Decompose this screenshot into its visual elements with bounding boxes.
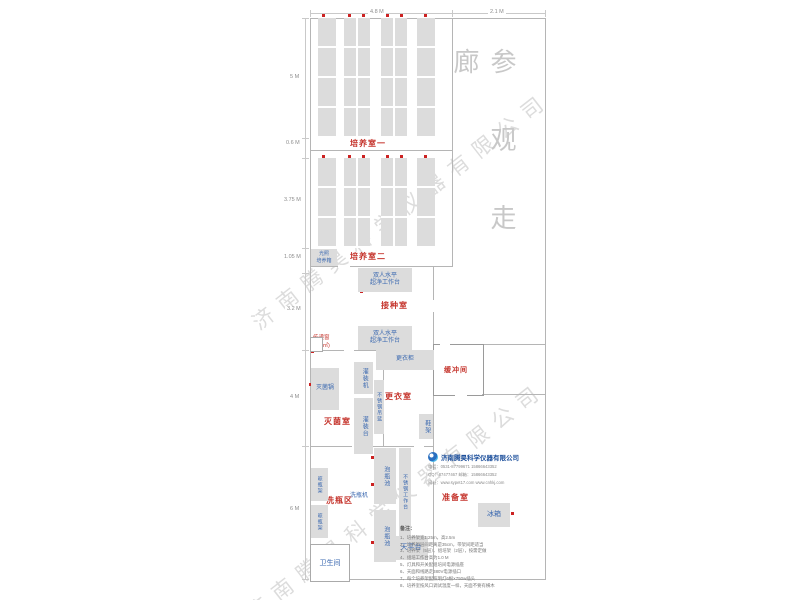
culture-rack [381, 18, 407, 138]
outlet-dot [400, 155, 403, 158]
room-label-buffer-room: 缓冲间 [444, 365, 468, 375]
outlet-dot [362, 14, 365, 17]
culture-rack [381, 158, 407, 248]
equipment-refrigerator: 冰箱 [478, 503, 510, 527]
outlet-dot [386, 14, 389, 17]
outlet-dot [322, 155, 325, 158]
dimension-label-left-1: 5 M [288, 74, 301, 80]
company-info-block: 济南腾昊科学仪器有限公司 电话：0531-87799671 1586664335… [428, 452, 523, 486]
note-item: 8、培养室按风口调试温度一样，天面不要有横木 [400, 583, 505, 590]
label-line: 超净工作台 [370, 280, 400, 286]
door-gap [338, 265, 350, 268]
company-qq: QQ：87477467 邮箱：15866643352 [428, 472, 523, 478]
equipment-stainless-worktable: 不锈钢工作台 [399, 448, 411, 536]
equipment-clean-bench-1: 双人水平 超净工作台 [358, 268, 412, 292]
outlet-dot [511, 512, 514, 515]
door-gap [455, 392, 467, 396]
dimension-label-left-3: 3.75 M [282, 197, 303, 203]
culture-rack [318, 158, 336, 248]
note-item: 7、每个培养架配照明灯6根×750w插头 [400, 576, 505, 583]
outlet-dot [362, 155, 365, 158]
label-line: 双人水平 [373, 273, 397, 279]
company-website: 网址：www.sypet17.com www.cnhkj.com [428, 480, 523, 486]
equipment-wardrobe: 更衣柜 [376, 350, 434, 370]
room-label-inoculation-room: 接种室 [381, 300, 408, 311]
dimension-tick [310, 10, 311, 17]
equipment-light-incubator: 光照 培养箱 [311, 249, 337, 266]
company-phone: 电话：0531-87799671 15866643352 [428, 464, 523, 470]
note-item: 1、培养架宽1.25m，高2.5m [400, 535, 505, 542]
culture-rack [417, 18, 435, 138]
dimension-tick [302, 248, 309, 249]
room-label-culture-room-2: 培养室二 [350, 251, 386, 262]
culture-rack [318, 18, 336, 138]
dimension-tick [545, 10, 546, 17]
wall [310, 266, 453, 267]
room-label-bottle-washing-area: 洗瓶区 [326, 495, 353, 506]
dimension-tick [302, 138, 309, 139]
dimension-tick [452, 10, 453, 17]
outlet-dot [424, 155, 427, 158]
visitor-corridor-label: 参观走廊 [446, 48, 520, 348]
notes-block: 备注： 1、培养架宽1.25m，高2.5m 2、培养架层间距离是35cm，带架间… [400, 526, 505, 589]
dimension-tick [302, 350, 309, 351]
dimension-tick [302, 579, 309, 580]
equipment-shoe-rack: 鞋架 [419, 414, 433, 439]
room-label-culture-room-1: 培养室一 [350, 138, 386, 149]
outlet-dot [348, 155, 351, 158]
dimension-label-left-4: 1.05 M [282, 254, 303, 260]
label-line: 超净工作台 [370, 338, 400, 344]
outlet-dot [424, 14, 427, 17]
notes-heading: 备注： [400, 526, 505, 534]
culture-rack [344, 158, 370, 248]
equipment-bottle-drying-rack: 晾瓶架 [311, 505, 328, 538]
equipment-bottle-washer-label: 洗瓶机 [350, 490, 368, 499]
floorplan-canvas: 济南腾昊科学仪器有限公司 济南腾昊科学仪器有限公司 [0, 0, 800, 600]
wall [482, 394, 545, 395]
outlet-dot [348, 14, 351, 17]
dimension-label-top-2: 2.1 M [488, 9, 506, 15]
dimension-tick [302, 273, 309, 274]
dimension-tick [302, 446, 309, 447]
equipment-clean-bench-2: 双人水平 超净工作台 [358, 326, 412, 350]
wall [545, 18, 546, 580]
label-line: 双人水平 [373, 331, 397, 337]
door-gap [432, 300, 435, 312]
equipment-filling-table: 灌装台 [354, 398, 373, 454]
dimension-line [310, 13, 545, 14]
dimension-tick [302, 158, 309, 159]
door-gap [414, 445, 424, 448]
dimension-label-left-6: 4 M [288, 394, 301, 400]
equipment-bottle-drying-rack: 晾瓶架 [311, 468, 328, 501]
company-name: 济南腾昊科学仪器有限公司 [441, 452, 519, 462]
outlet-dot [322, 14, 325, 17]
dimension-tick [302, 18, 309, 19]
label-line: 光照 [319, 251, 329, 257]
dimension-label-top-1: 4.8 M [368, 9, 386, 15]
note-item: 6、天面和线路走380V电源插口 [400, 569, 505, 576]
outlet-dot [386, 155, 389, 158]
dimension-label-left-7: 6 M [288, 506, 301, 512]
note-item: 5、灯具和开关配组培间电源插座 [400, 562, 505, 569]
watermark-text: 济南腾昊科学仪器有限公司 [240, 374, 552, 600]
equipment-stainless-basket: 不锈钢吊篮 [374, 380, 384, 434]
outlet-dot [400, 14, 403, 17]
equipment-filling-machine: 灌装机 [354, 362, 373, 394]
room-label-bathroom: 卫生间 [320, 558, 341, 568]
room-label-preparation-room: 准备室 [442, 492, 469, 503]
pass-window-box [310, 337, 323, 352]
room-label-changing-room: 更衣室 [385, 391, 412, 402]
wall [310, 150, 452, 151]
culture-rack [344, 18, 370, 138]
room-label-sterilization-room: 灭菌室 [324, 416, 351, 427]
equipment-soaking-pool: 泡瓶池 [374, 510, 396, 562]
door-gap [344, 349, 354, 352]
equipment-soaking-pool: 泡瓶池 [374, 448, 396, 504]
bathroom-box: 卫生间 [310, 544, 350, 582]
equipment-sterilizer: 灭菌锅 [311, 368, 339, 410]
dimension-label-left-5: 3.2 M [285, 306, 303, 312]
label-line: 培养箱 [316, 258, 331, 264]
culture-rack [417, 158, 435, 248]
dimension-line [305, 18, 306, 580]
dimension-label-left-2: 0.6 M [284, 140, 302, 146]
company-logo-icon [428, 452, 438, 462]
